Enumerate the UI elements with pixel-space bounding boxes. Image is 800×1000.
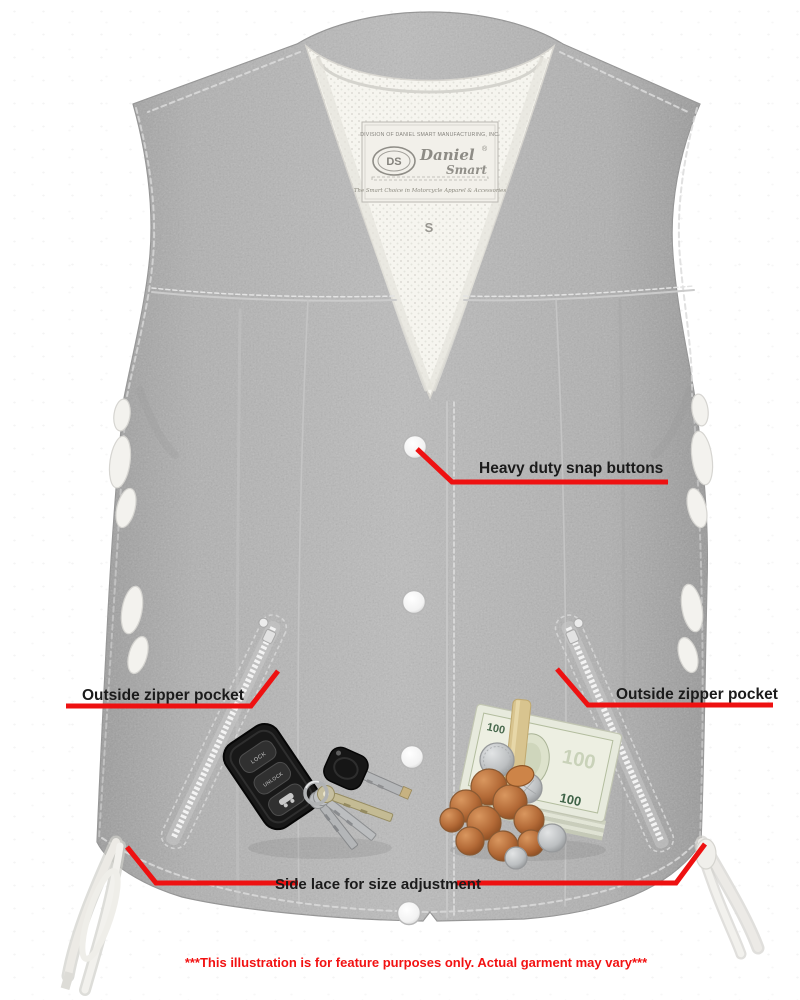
product-illustration: DIVISION OF DANIEL SMART MANUFACTURING, … <box>0 0 800 1000</box>
snap-button-3 <box>401 746 424 769</box>
brand-name-line2: Smart <box>446 163 487 177</box>
side-lace-left-tie <box>61 842 125 990</box>
callout-label-side-lace: Side lace for size adjustment <box>275 876 481 893</box>
disclaimer-text: ***This illustration is for feature purp… <box>185 955 648 970</box>
logo-monogram: DS <box>386 156 401 168</box>
brand-name-line1: Daniel <box>419 146 475 164</box>
snap-button-4 <box>398 902 421 925</box>
size-letter: S <box>425 220 434 235</box>
brand-label: DIVISION OF DANIEL SMART MANUFACTURING, … <box>354 122 506 202</box>
registered-mark: ® <box>482 145 488 153</box>
side-lace-right-tie <box>696 839 758 954</box>
callout-label-snap-buttons: Heavy duty snap buttons <box>479 460 663 477</box>
label-division-line: DIVISION OF DANIEL SMART MANUFACTURING, … <box>360 132 500 138</box>
label-tagline: The Smart Choice in Motorcycle Apparel &… <box>354 188 506 194</box>
snap-button-2 <box>403 591 426 614</box>
callout-label-pocket-right: Outside zipper pocket <box>616 686 778 703</box>
callout-label-pocket-left: Outside zipper pocket <box>82 687 244 704</box>
